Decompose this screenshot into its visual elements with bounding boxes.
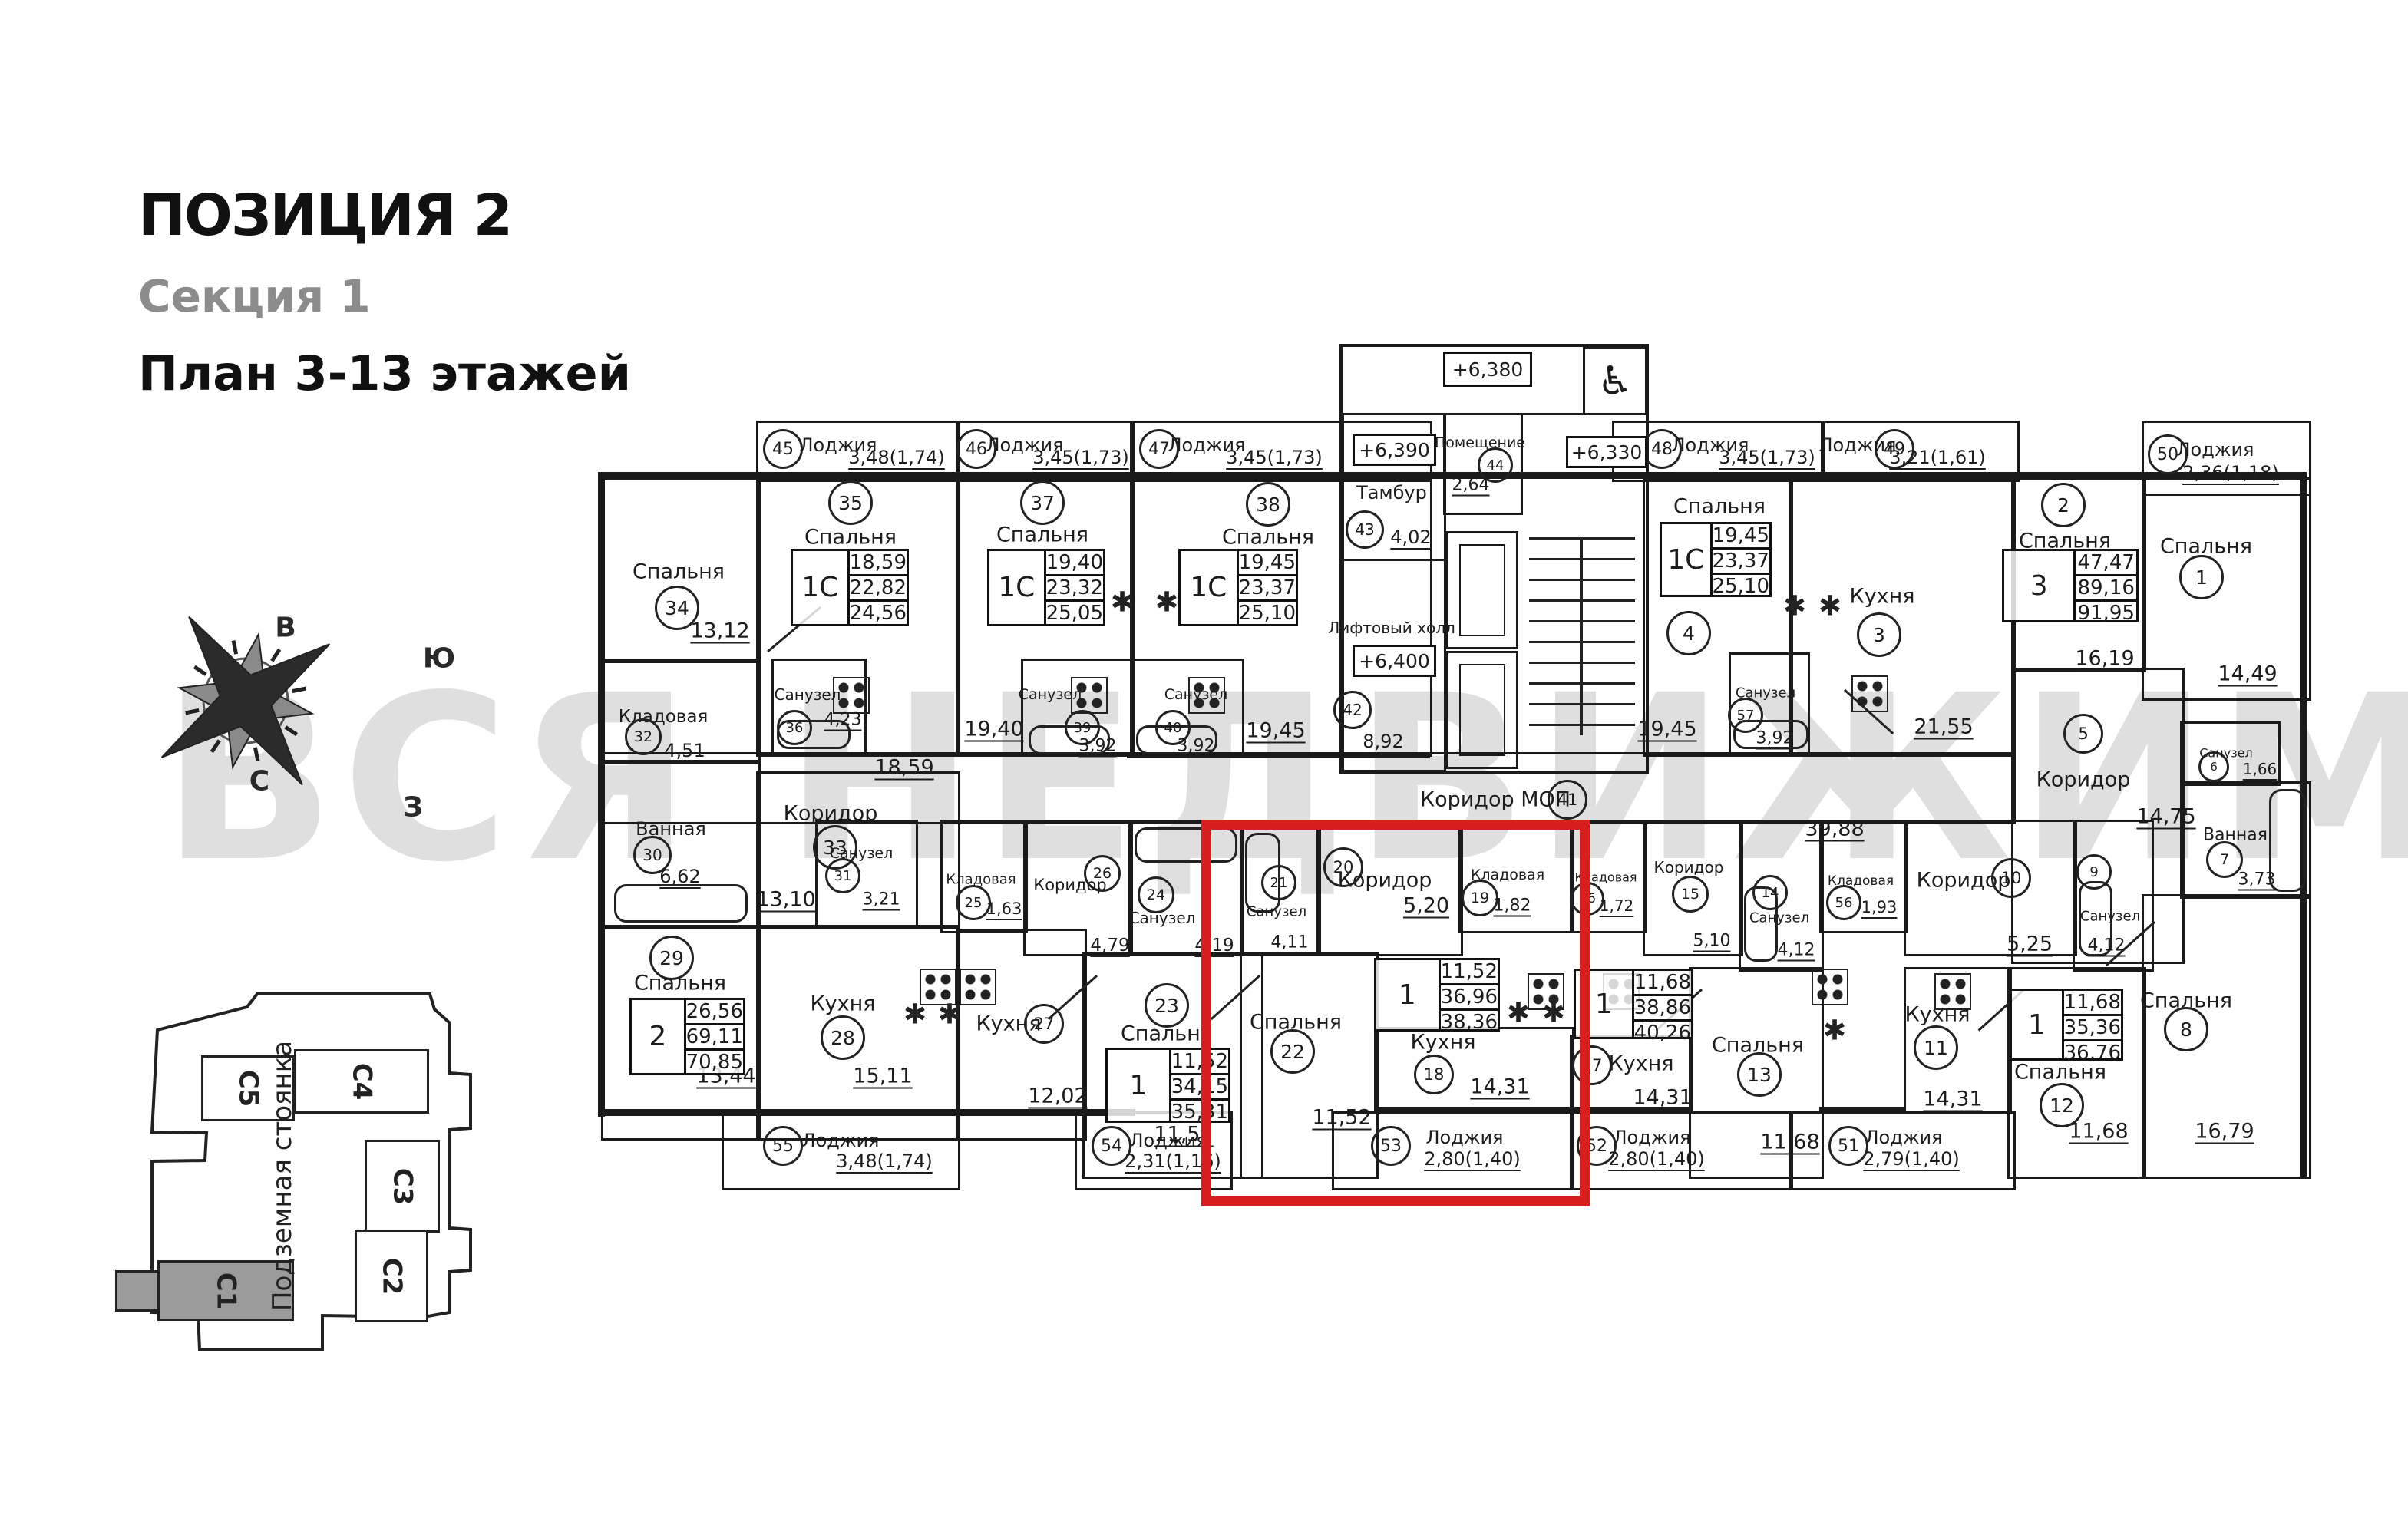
room-area: 8,92 — [1363, 731, 1403, 752]
elevator-shaft-2 — [1446, 651, 1518, 769]
room-area: 14,31 — [1923, 1088, 1982, 1111]
vent-shaft-icon: ✱ — [1155, 587, 1178, 619]
room-area: 3,92 — [1079, 737, 1117, 756]
room-label: Санузел — [1019, 686, 1082, 703]
apartment-area-value: 24,56 — [850, 599, 907, 625]
apartment-area-value: 25,10 — [1713, 573, 1769, 598]
room-area: 11,68 — [1760, 1131, 1819, 1154]
loggia-area: 2,80(1,40) — [1608, 1148, 1705, 1170]
room-label: Коридор — [784, 802, 878, 826]
room-label: Санузел — [1749, 910, 1809, 926]
room-label: Помещение — [1435, 434, 1525, 451]
room-area: 14,49 — [2218, 662, 2277, 686]
room-area: 4,12 — [1778, 941, 1815, 960]
apartment-area-value: 11,68 — [2064, 991, 2121, 1014]
apartment-area-value: 91,95 — [2076, 599, 2136, 625]
loggia-area: 3,45(1,73) — [1032, 447, 1129, 468]
apartment-area-rows: 26,5669,1170,85 — [684, 1000, 743, 1073]
apartment-type: 1 — [1108, 1050, 1169, 1121]
compass-tick — [255, 748, 258, 761]
room-label: Коридор — [1654, 858, 1724, 876]
room-number-badge: 13 — [1737, 1052, 1782, 1097]
room-number-badge: 29 — [649, 936, 694, 980]
room-area: 4,02 — [1390, 527, 1431, 548]
apartment-type: 1С — [1662, 524, 1710, 595]
room-label: Кухня — [810, 992, 875, 1016]
level-mark: +6,400 — [1353, 645, 1436, 677]
apartment-area-value: 38,86 — [1634, 994, 1691, 1019]
loggia-area: 2,36(1,18) — [2182, 462, 2279, 484]
apartment-area-table: 1С19,4523,3725,10 — [1178, 549, 1298, 626]
loggia-area: 3,48(1,74) — [848, 447, 945, 468]
apartment-area-rows: 47,4789,1691,95 — [2073, 551, 2136, 620]
room-area: 18,59 — [874, 756, 933, 780]
vent-shaft-icon: ✱ — [938, 999, 961, 1031]
room-number-badge: 10 — [1991, 858, 2031, 898]
vent-shaft-icon: ✱ — [1111, 587, 1134, 619]
room-number-badge: 36 — [777, 710, 812, 745]
level-mark: +6,390 — [1353, 434, 1436, 466]
room-area: 12,02 — [1028, 1084, 1087, 1108]
apartment-area-table: 111,6835,3636,76 — [2010, 989, 2123, 1061]
compass-south-label: Ю — [423, 643, 455, 675]
room-number-badge: 37 — [1020, 480, 1065, 525]
level-mark: +6,330 — [1566, 436, 1647, 468]
room-area: 16,19 — [2075, 647, 2134, 671]
room-area: 4,79 — [1090, 936, 1129, 956]
apartment-area-value: 40,26 — [1634, 1019, 1691, 1045]
room-number-badge: 2 — [2041, 483, 2086, 527]
room-area: 21,55 — [1914, 715, 1973, 739]
apartment-area-rows: 19,4523,3725,10 — [1710, 524, 1769, 595]
compass-east-label: В — [275, 612, 296, 644]
apartment-area-rows: 18,5922,8224,56 — [847, 551, 907, 624]
apartment-area-value: 19,40 — [1046, 551, 1103, 574]
compass-tick — [272, 649, 279, 661]
room-label: Спальня — [1673, 495, 1766, 519]
compass-rose — [115, 566, 376, 835]
compass-star-icon — [115, 566, 376, 835]
elevator-cab-icon — [1459, 664, 1505, 756]
floor-plan-page: ПОЗИЦИЯ 2 Секция 1 План 3-13 этажей ВСЯ … — [0, 0, 2408, 1535]
room-number-badge: 28 — [821, 1015, 865, 1060]
apartment-area-value: 25,05 — [1046, 599, 1103, 625]
room-number-badge: 3 — [1857, 612, 1901, 657]
loggia-number-badge: 55 — [763, 1126, 803, 1166]
stove-icon — [960, 969, 996, 1005]
room-number-badge: 24 — [1138, 876, 1174, 913]
apartment-area-value: 25,10 — [1239, 599, 1296, 625]
room-area: 3,92 — [1178, 737, 1215, 756]
room-area: 6,62 — [659, 866, 700, 887]
room-area: 14,31 — [1633, 1086, 1692, 1110]
room-label: Спальня — [804, 526, 897, 550]
site-section-s3: С3 — [365, 1140, 440, 1233]
apartment-area-rows: 19,4023,3225,05 — [1044, 551, 1103, 624]
loggia-area: 3,48(1,74) — [836, 1150, 933, 1172]
room-area: 19,45 — [1246, 719, 1305, 743]
room-label: Кухня — [1849, 585, 1914, 609]
room-number-badge: 15 — [1672, 876, 1709, 913]
compass-west-label: З — [403, 792, 423, 824]
room-number-badge: 1 — [2179, 555, 2224, 599]
room-number-badge: 42 — [1333, 691, 1372, 729]
apartment-type: 1С — [1181, 551, 1237, 624]
loggia-number-badge: 51 — [1828, 1126, 1868, 1166]
room-label: Кладовая — [946, 872, 1016, 888]
room-area: 14,75 — [2136, 805, 2195, 829]
room-area: 15,11 — [853, 1065, 912, 1088]
compass-tick — [194, 667, 206, 675]
apartment-area-value: 23,32 — [1046, 574, 1103, 599]
apartment-area-value: 18,59 — [850, 551, 907, 574]
room-label: Санузел — [2080, 909, 2140, 925]
apartment-type: 1С — [793, 551, 847, 624]
vent-shaft-icon: ✱ — [1818, 591, 1842, 622]
apartment-area-table: 111,6838,8640,26 — [1574, 969, 1693, 1039]
room-number-badge: 4 — [1666, 611, 1711, 655]
room-number-badge: 5 — [2063, 714, 2103, 754]
highlighted-apartment-outline — [1201, 820, 1590, 1206]
room-number-badge: 23 — [1145, 983, 1189, 1028]
room-label: Кухня — [1904, 1003, 1970, 1027]
apartment-area-table: 1С19,4023,3225,05 — [987, 549, 1105, 626]
compass-tick — [212, 741, 220, 752]
wall-segment — [598, 472, 605, 1117]
elevator-shaft-1 — [1446, 531, 1518, 649]
room-label: Тамбур — [1356, 482, 1427, 503]
room-number-badge: 11 — [1914, 1025, 1958, 1070]
apartment-area-value: 89,16 — [2076, 574, 2136, 599]
apartment-type: 3 — [2004, 551, 2073, 620]
loggia-label: Лоджия — [1614, 1127, 1691, 1148]
site-section-s2: С2 — [355, 1230, 428, 1322]
loggia-label: Лоджия — [1819, 434, 1897, 456]
apartment-area-value: 19,45 — [1239, 551, 1296, 574]
apartment-area-value: 11,68 — [1634, 971, 1691, 994]
apartment-area-table: 347,4789,1691,95 — [2002, 549, 2139, 622]
loggia-label: Лоджия — [1130, 1130, 1207, 1151]
room-area: 1,63 — [986, 900, 1022, 918]
room-area: 4,12 — [2088, 936, 2126, 956]
compass-tick — [233, 641, 236, 655]
apartment-area-value: 19,45 — [1713, 524, 1769, 547]
apartment-area-value: 22,82 — [850, 574, 907, 599]
apartment-type: 2 — [632, 1000, 684, 1073]
room-label: Коридор — [2036, 768, 2131, 792]
apartment-area-rows: 11,6835,3636,76 — [2062, 991, 2121, 1058]
apartment-area-value: 36,76 — [2064, 1039, 2121, 1065]
stairs-rail — [1580, 537, 1583, 735]
room-label: Спальня — [996, 523, 1088, 547]
room-area: 4,51 — [664, 740, 705, 761]
floors-title: План 3-13 этажей — [138, 345, 631, 401]
room-area: 5,10 — [1693, 932, 1731, 951]
wall-segment — [1819, 1107, 1904, 1114]
apartment-area-value: 26,56 — [686, 1000, 743, 1023]
level-mark: +6,380 — [1443, 352, 1532, 387]
apartment-type: 1С — [989, 551, 1044, 624]
apartment-area-value: 69,11 — [686, 1023, 743, 1048]
stove-icon — [1812, 969, 1848, 1005]
loggia-area: 3,45(1,73) — [1719, 447, 1815, 468]
room-label: Спальня — [633, 560, 725, 584]
room-area: 16,79 — [2195, 1120, 2254, 1144]
room-area: 3,73 — [2238, 870, 2276, 890]
apartment-area-value: 23,37 — [1713, 547, 1769, 573]
room-number-badge: 26 — [1084, 855, 1121, 892]
room-area: 13,12 — [690, 619, 749, 643]
apartment-area-rows: 19,4523,3725,10 — [1237, 551, 1296, 624]
compass-tick — [286, 727, 297, 734]
apartment-area-table: 1С18,5922,8224,56 — [791, 549, 909, 626]
room-number-badge: 43 — [1346, 510, 1384, 549]
room-number-badge: 31 — [825, 858, 860, 893]
room-area: 1,66 — [2243, 760, 2278, 778]
elevator-cab-icon — [1459, 544, 1505, 636]
apartment-area-table: 226,5669,1170,85 — [629, 998, 745, 1075]
room-area: 4,23 — [824, 711, 862, 730]
vent-shaft-icon: ✱ — [903, 999, 927, 1031]
compass-tick — [186, 710, 200, 713]
room-area: 3,21 — [863, 890, 900, 909]
compass-north-label: С — [249, 766, 269, 797]
loggia-number-badge: 45 — [763, 429, 803, 469]
loggia-area: 3,45(1,73) — [1226, 447, 1323, 468]
room-area: 19,40 — [964, 718, 1023, 741]
room-label: Лифтовый холл — [1328, 619, 1455, 637]
room-area: 39,88 — [1805, 817, 1864, 841]
apartment-area-value: 47,47 — [2076, 551, 2136, 574]
room-area: 19,45 — [1637, 718, 1696, 741]
room-number-badge: 6 — [2198, 751, 2229, 782]
room-area: 3,92 — [1756, 729, 1794, 748]
room-area: 1,93 — [1861, 898, 1898, 916]
room-label: Ванная — [2203, 826, 2268, 845]
wall-segment — [598, 1109, 1135, 1116]
vent-shaft-icon: ✱ — [1783, 591, 1806, 622]
compass-tick — [292, 688, 306, 692]
apartment-area-value: 35,36 — [2064, 1014, 2121, 1039]
room-area: 13,10 — [756, 888, 815, 912]
room-number-badge: 27 — [1024, 1004, 1064, 1044]
room-number-badge: 38 — [1246, 482, 1290, 527]
apartment-area-value: 23,37 — [1239, 574, 1296, 599]
room-number-badge: 9 — [2076, 854, 2112, 890]
room-label: Санузел — [775, 685, 841, 704]
loggia-label: Лоджия — [802, 1130, 880, 1151]
apartment-type: 1 — [2012, 991, 2062, 1058]
room-area: 2,64 — [1452, 476, 1490, 495]
apartment-area-table: 1С19,4523,3725,10 — [1660, 522, 1772, 597]
loggia-label: Лоджия — [2177, 439, 2254, 460]
loggia-area: 2,79(1,40) — [1863, 1148, 1960, 1170]
room-area: 11,68 — [2069, 1120, 2128, 1144]
loggia-label: Лоджия — [1865, 1127, 1943, 1148]
room-area: 1,72 — [1600, 896, 1634, 915]
loggia-area: 3,21(1,61) — [1889, 447, 1986, 468]
room-label: Спальня — [1222, 526, 1314, 550]
room-number-badge: 41 — [1548, 780, 1587, 820]
compass-star-polygon — [162, 617, 330, 785]
site-section-s1-tab — [115, 1270, 160, 1312]
room-number-badge: 14 — [1752, 875, 1788, 910]
room-number-badge: 8 — [2164, 1007, 2208, 1051]
room-number-badge: 32 — [625, 718, 662, 755]
apartment-area-rows: 11,6838,8640,26 — [1632, 971, 1691, 1037]
room-number-badge: 35 — [828, 480, 873, 525]
section-subtitle: Секция 1 — [138, 270, 371, 322]
underground-parking-label: Подземная стоянка — [267, 1041, 298, 1311]
room-label: Санузел — [1164, 686, 1228, 703]
apartment-area-value: 70,85 — [686, 1048, 743, 1074]
room-area: 5,25 — [2007, 933, 2053, 956]
bathtub-icon — [614, 884, 748, 923]
vent-shaft-icon: ✱ — [1823, 1015, 1846, 1047]
page-title: ПОЗИЦИЯ 2 — [138, 183, 511, 249]
site-section-s4: С4 — [294, 1049, 429, 1114]
stove-icon — [1851, 675, 1888, 712]
room-label: Кухня — [1608, 1052, 1673, 1076]
room-number-badge: 56 — [1826, 885, 1861, 920]
wheelchair-icon: ♿ — [1583, 347, 1647, 415]
room-number-badge: 57 — [1728, 698, 1763, 733]
